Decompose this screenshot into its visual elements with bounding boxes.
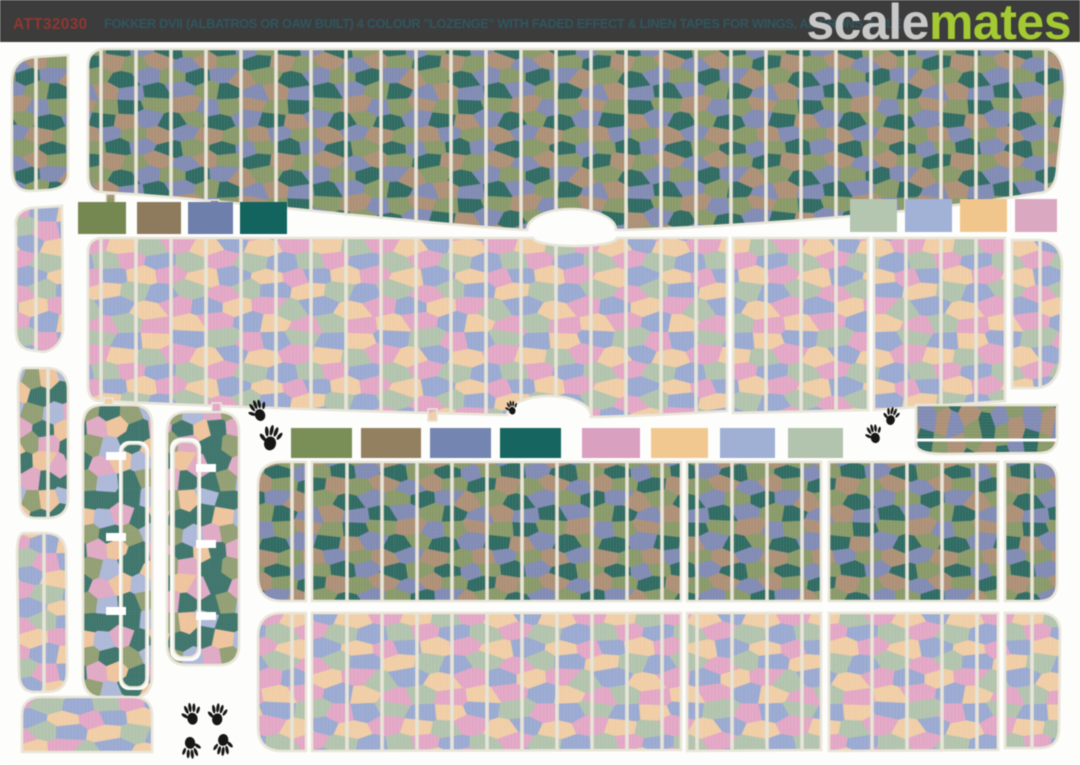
svg-text:ATT32030: ATT32030	[13, 16, 87, 33]
svg-text:FOKKER DVII (ALBATROS OR OAW B: FOKKER DVII (ALBATROS OR OAW BUILT) 4 CO…	[104, 16, 903, 31]
svg-text:scalemates: scalemates	[806, 0, 1071, 50]
